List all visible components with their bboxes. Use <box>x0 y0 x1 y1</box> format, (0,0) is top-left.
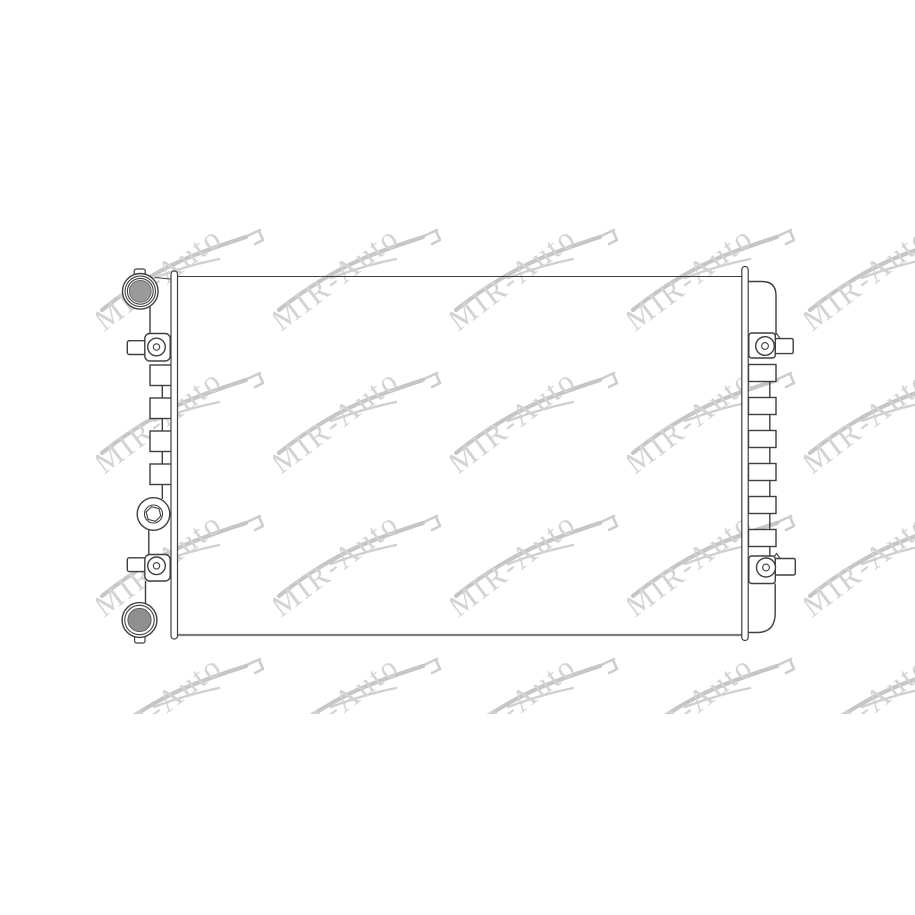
right-tank-ribs <box>749 365 777 547</box>
right-bracket-lower <box>749 554 796 584</box>
rib <box>749 464 777 481</box>
right-tank-top-edge <box>746 282 776 335</box>
right-bracket-upper <box>749 333 793 358</box>
rib <box>150 365 173 386</box>
radiator-drawing <box>0 0 915 915</box>
rib <box>150 398 173 419</box>
left-bracket-lower <box>127 555 170 582</box>
right-tank-bottom-edge <box>746 584 775 633</box>
outlet-port <box>122 603 157 643</box>
right-side-plate <box>742 267 748 641</box>
bracket-tab <box>127 341 146 355</box>
rib <box>749 530 777 547</box>
right-tank <box>746 282 795 633</box>
rib <box>150 431 173 452</box>
bracket-tab <box>127 558 146 572</box>
product-image: MIR-Auto MIR-Auto MIR-Auto <box>0 0 915 915</box>
bracket-hole <box>756 337 775 356</box>
bracket-tab <box>775 339 793 354</box>
bracket-hole <box>148 338 166 356</box>
left-tank <box>122 269 175 643</box>
left-side-plate <box>171 271 178 639</box>
inlet-opening <box>129 280 151 302</box>
inlet-port <box>123 274 159 310</box>
rib <box>749 365 777 382</box>
rib <box>749 431 777 448</box>
rib <box>749 497 777 514</box>
bracket-tab <box>775 559 796 576</box>
rib <box>150 464 173 485</box>
left-bracket-upper <box>127 334 170 362</box>
rib <box>749 398 777 415</box>
drain-boss <box>137 498 170 531</box>
outlet-opening <box>128 608 151 631</box>
bracket-hole <box>148 557 166 575</box>
boss-outer <box>137 498 170 531</box>
left-tank-ribs <box>150 365 173 485</box>
radiator-core <box>171 267 748 641</box>
bracket-hole <box>757 558 776 577</box>
